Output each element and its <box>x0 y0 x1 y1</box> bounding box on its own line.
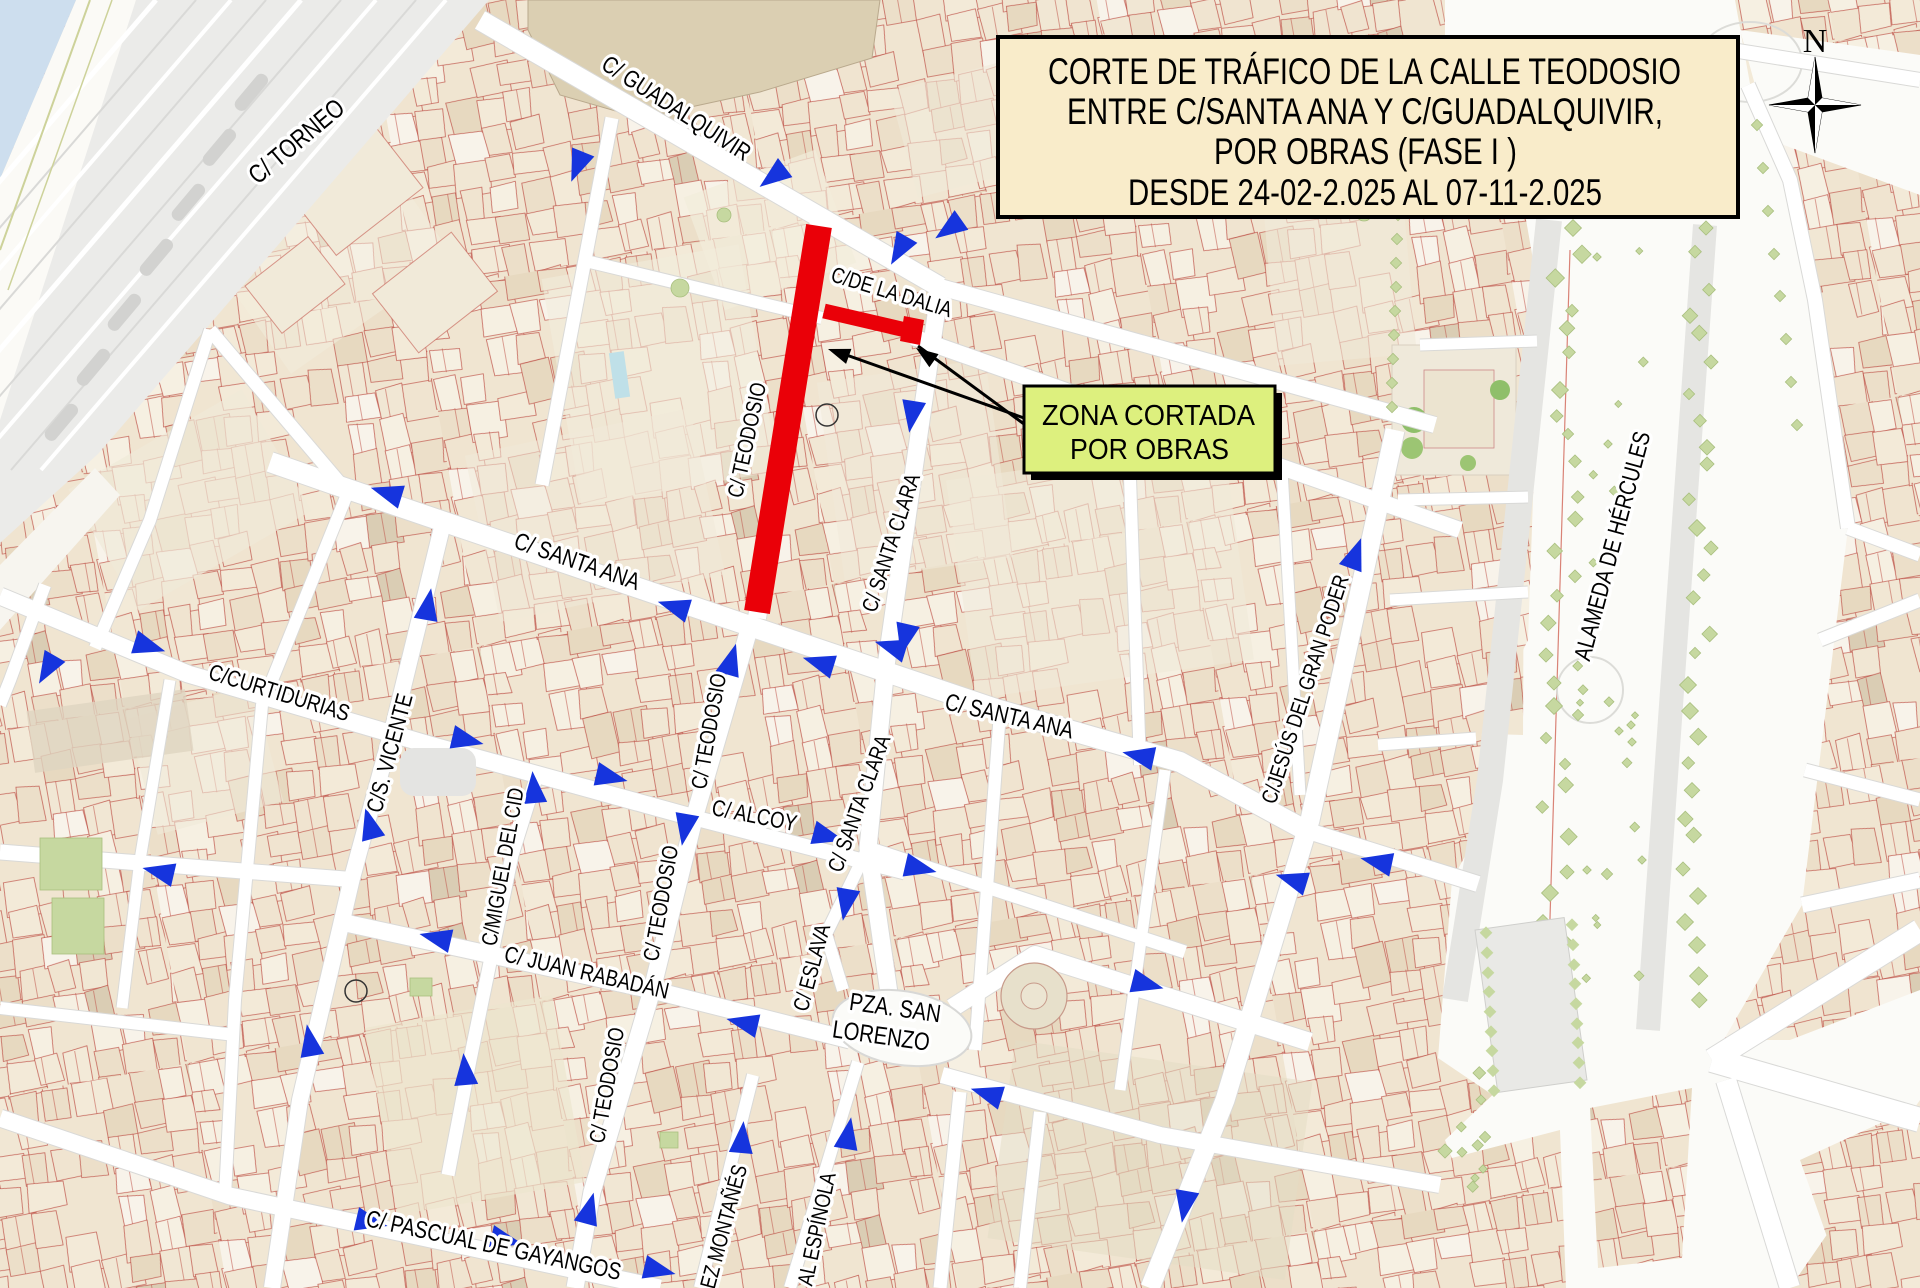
svg-text:N: N <box>1803 23 1828 60</box>
svg-text:DESDE 24-02-2.025 AL 07-11-2.0: DESDE 24-02-2.025 AL 07-11-2.025 <box>1128 172 1602 213</box>
svg-text:ENTRE C/SANTA ANA Y C/GUADALQU: ENTRE C/SANTA ANA Y C/GUADALQUIVIR, <box>1067 91 1663 132</box>
svg-text:CORTE DE TRÁFICO DE LA CALLE T: CORTE DE TRÁFICO DE LA CALLE TEODOSIO <box>1048 51 1681 92</box>
svg-text:POR OBRAS (FASE I ): POR OBRAS (FASE I ) <box>1214 131 1517 172</box>
svg-text:POR OBRAS: POR OBRAS <box>1070 434 1229 466</box>
svg-text:ZONA CORTADA: ZONA CORTADA <box>1042 400 1256 432</box>
